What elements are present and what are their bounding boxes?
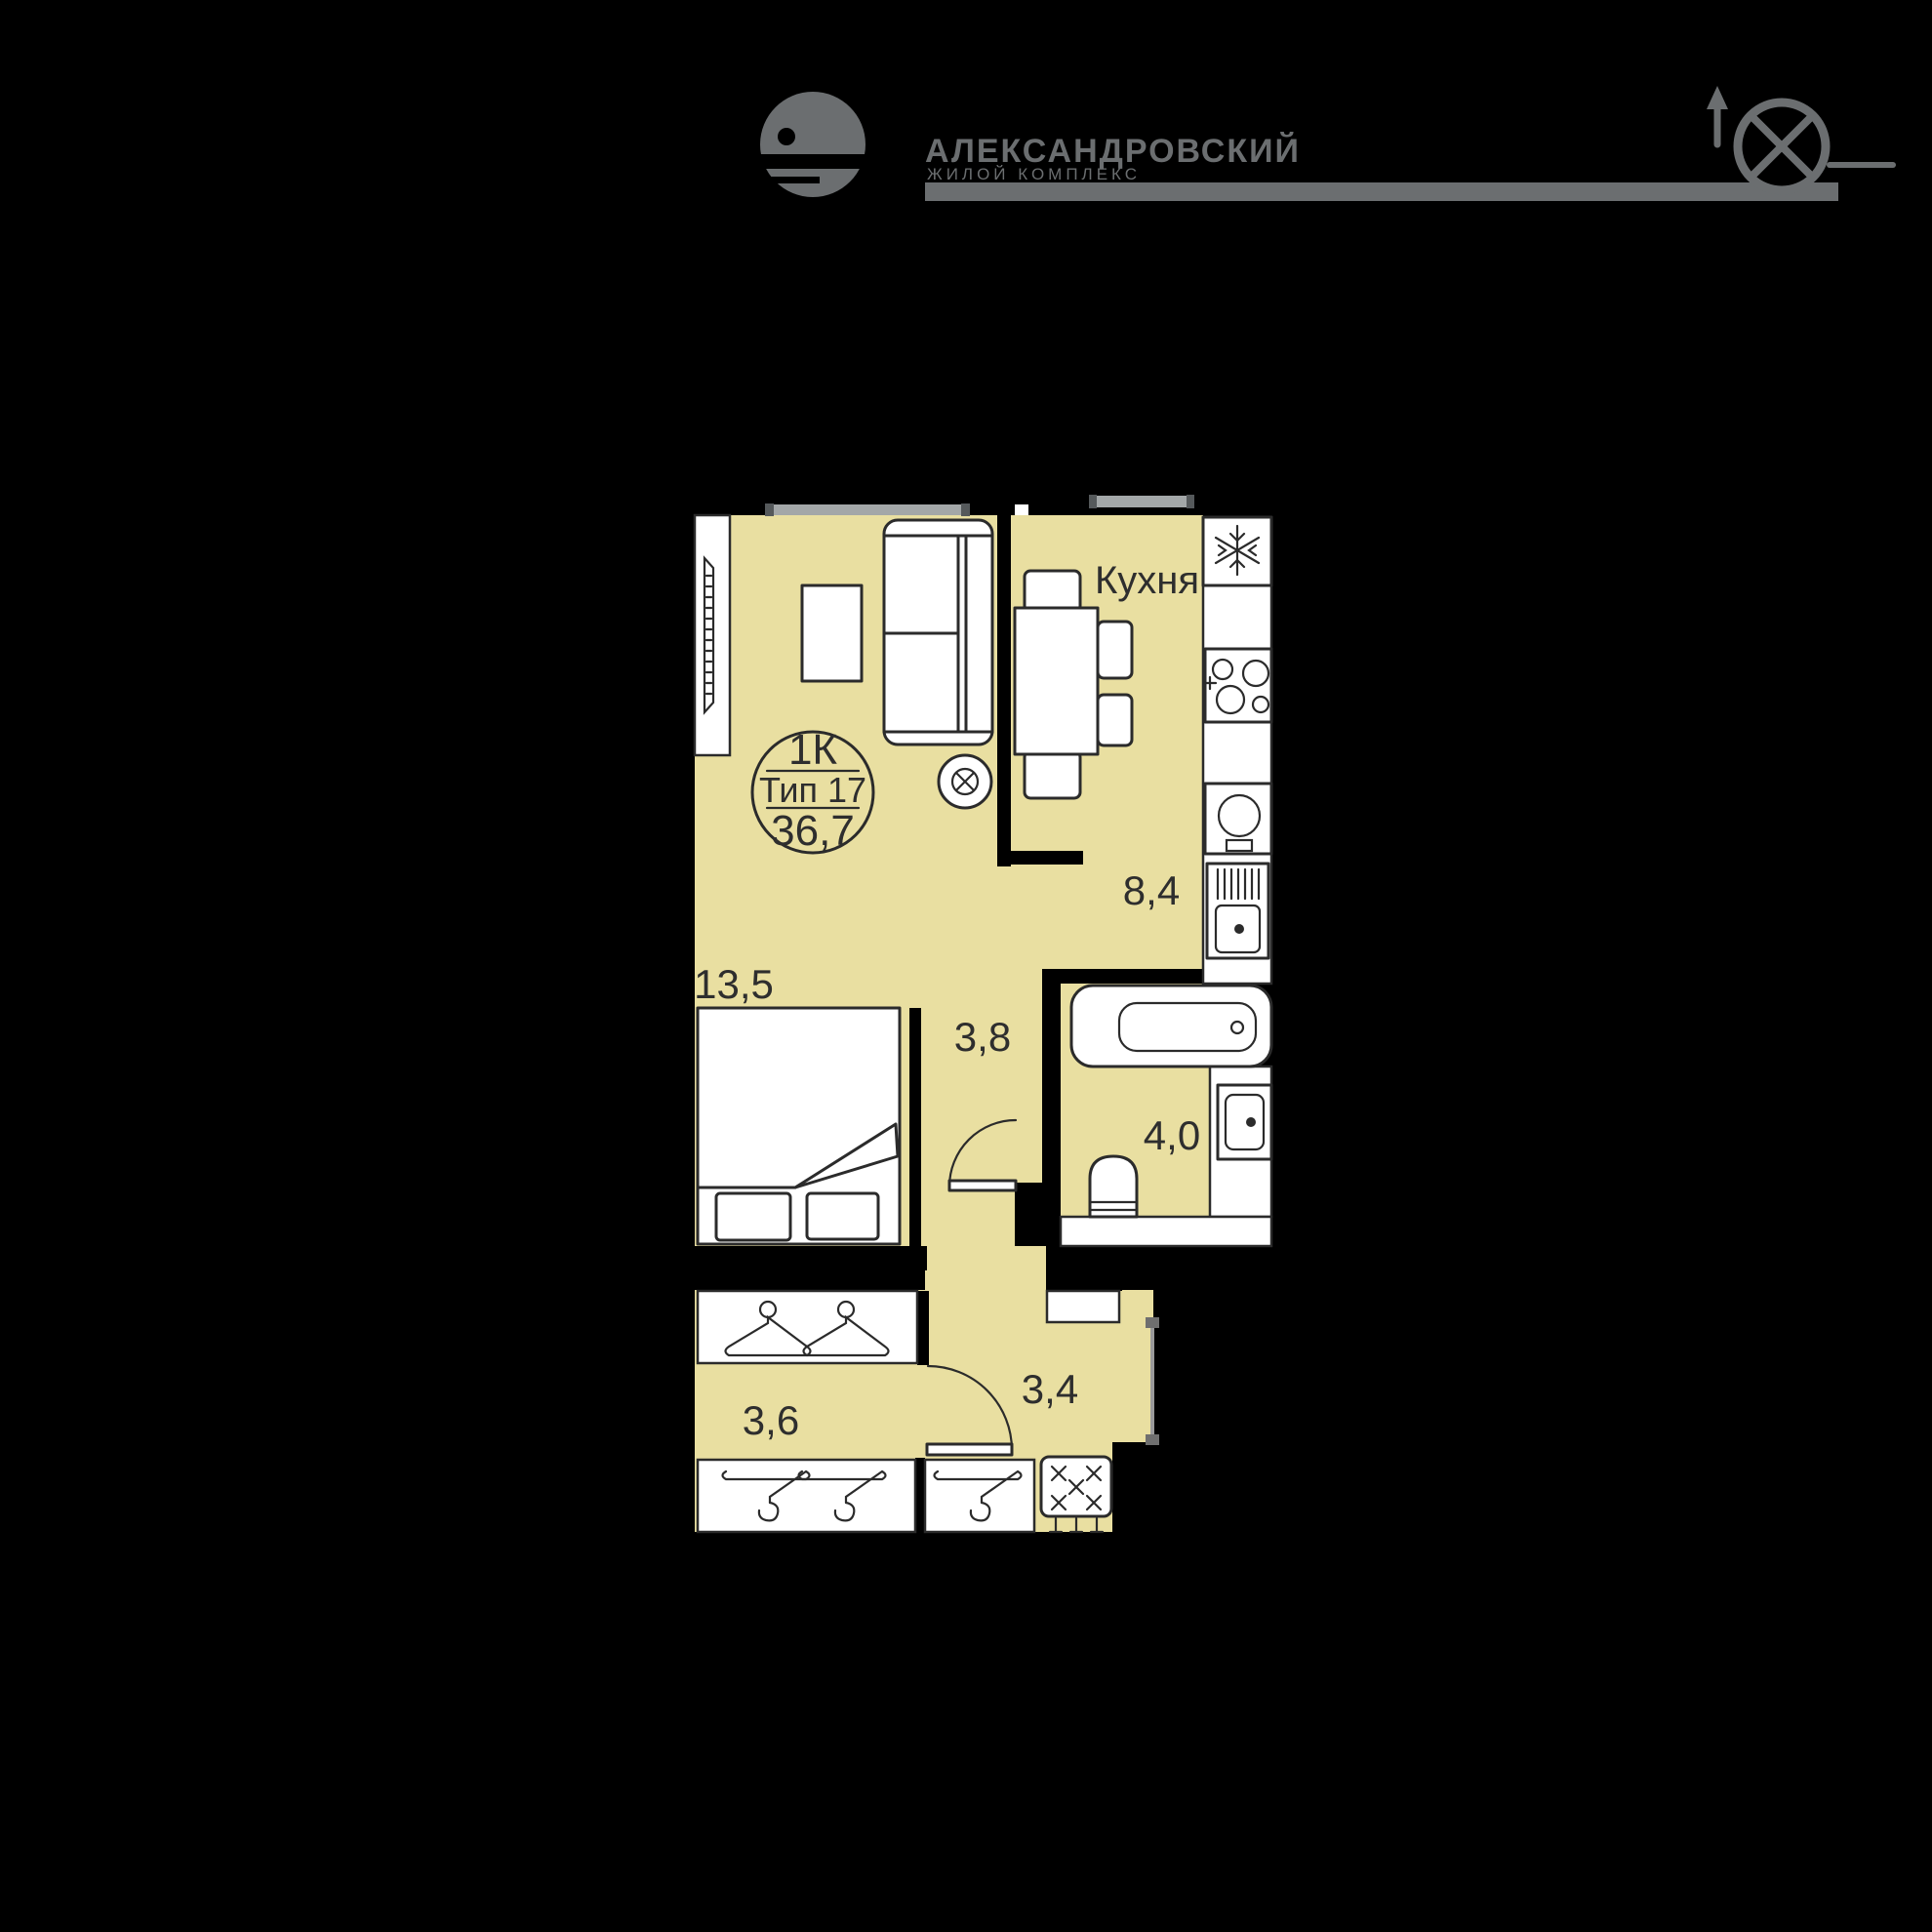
chair — [1025, 571, 1080, 612]
wardrobe-shelf — [698, 1291, 917, 1363]
wall-joint — [1015, 504, 1028, 515]
chair — [1098, 622, 1132, 678]
wall-corridor-top — [1046, 1270, 1122, 1291]
corridor-throat-floor — [925, 1246, 1046, 1295]
wall-bedroom-bottom — [683, 1246, 927, 1270]
kitchen-sink-icon — [1207, 864, 1268, 958]
stove-icon — [1204, 649, 1271, 722]
windows — [765, 495, 1194, 516]
badge-rooms: 1К — [788, 726, 837, 774]
toilet-icon — [1090, 1156, 1137, 1217]
bed — [698, 1008, 900, 1244]
chair — [1098, 695, 1132, 745]
label-kitchen-area: 8,4 — [1123, 867, 1180, 913]
wash-basin-icon — [1218, 1085, 1271, 1159]
compass-icon — [1707, 86, 1826, 190]
wall-hanger-gap — [915, 1458, 925, 1534]
brand-tagline: ЖИЛОЙ КОМПЛЕКС — [927, 165, 1141, 183]
pillow — [716, 1193, 790, 1240]
badge-type: Тип 17 — [759, 770, 866, 810]
wall-wardrobe — [917, 1291, 929, 1365]
ceiling-lamp-icon — [939, 755, 991, 808]
kitchen-window — [1093, 496, 1190, 507]
wall-bath-corner — [1015, 1183, 1061, 1246]
chair — [1025, 751, 1080, 798]
label-corridor-area: 3,4 — [1022, 1366, 1078, 1412]
wall-bed-partition — [909, 1008, 921, 1246]
floorplan-page: АЛЕКСАНДРОВСКИЙ ЖИЛОЙ КОМПЛЕКС — [0, 0, 1932, 1932]
wall-bath-bottom — [1061, 1246, 1288, 1270]
header-rule — [925, 182, 1838, 201]
label-bath-area: 4,0 — [1144, 1112, 1200, 1158]
living-window — [769, 504, 966, 515]
wall-kitchen-foot — [997, 851, 1083, 865]
bedroom-furniture — [698, 1008, 900, 1244]
label-hall-area: 3,8 — [954, 1014, 1011, 1060]
pillow — [807, 1193, 878, 1239]
wall-bath-left — [1042, 969, 1061, 1125]
wall-living-kitchen — [997, 515, 1011, 866]
fridge-icon — [1203, 517, 1271, 585]
bathtub-icon — [1071, 986, 1271, 1067]
coffee-table — [802, 585, 862, 681]
label-kitchen-name: Кухня — [1095, 559, 1199, 602]
badge-area: 36,7 — [771, 807, 855, 855]
header: АЛЕКСАНДРОВСКИЙ ЖИЛОЙ КОМПЛЕКС — [751, 86, 1893, 201]
brand-logo-icon — [751, 92, 874, 197]
dining-table — [1015, 608, 1098, 754]
label-wardrobe-area: 3,6 — [743, 1397, 799, 1443]
floorplan-canvas: АЛЕКСАНДРОВСКИЙ ЖИЛОЙ КОМПЛЕКС — [0, 0, 1932, 1932]
bath-duct — [1061, 1217, 1271, 1246]
sofa — [884, 520, 992, 745]
oven-icon — [1205, 784, 1271, 854]
corridor-duct — [1047, 1291, 1119, 1322]
label-living-area: 13,5 — [694, 961, 774, 1007]
